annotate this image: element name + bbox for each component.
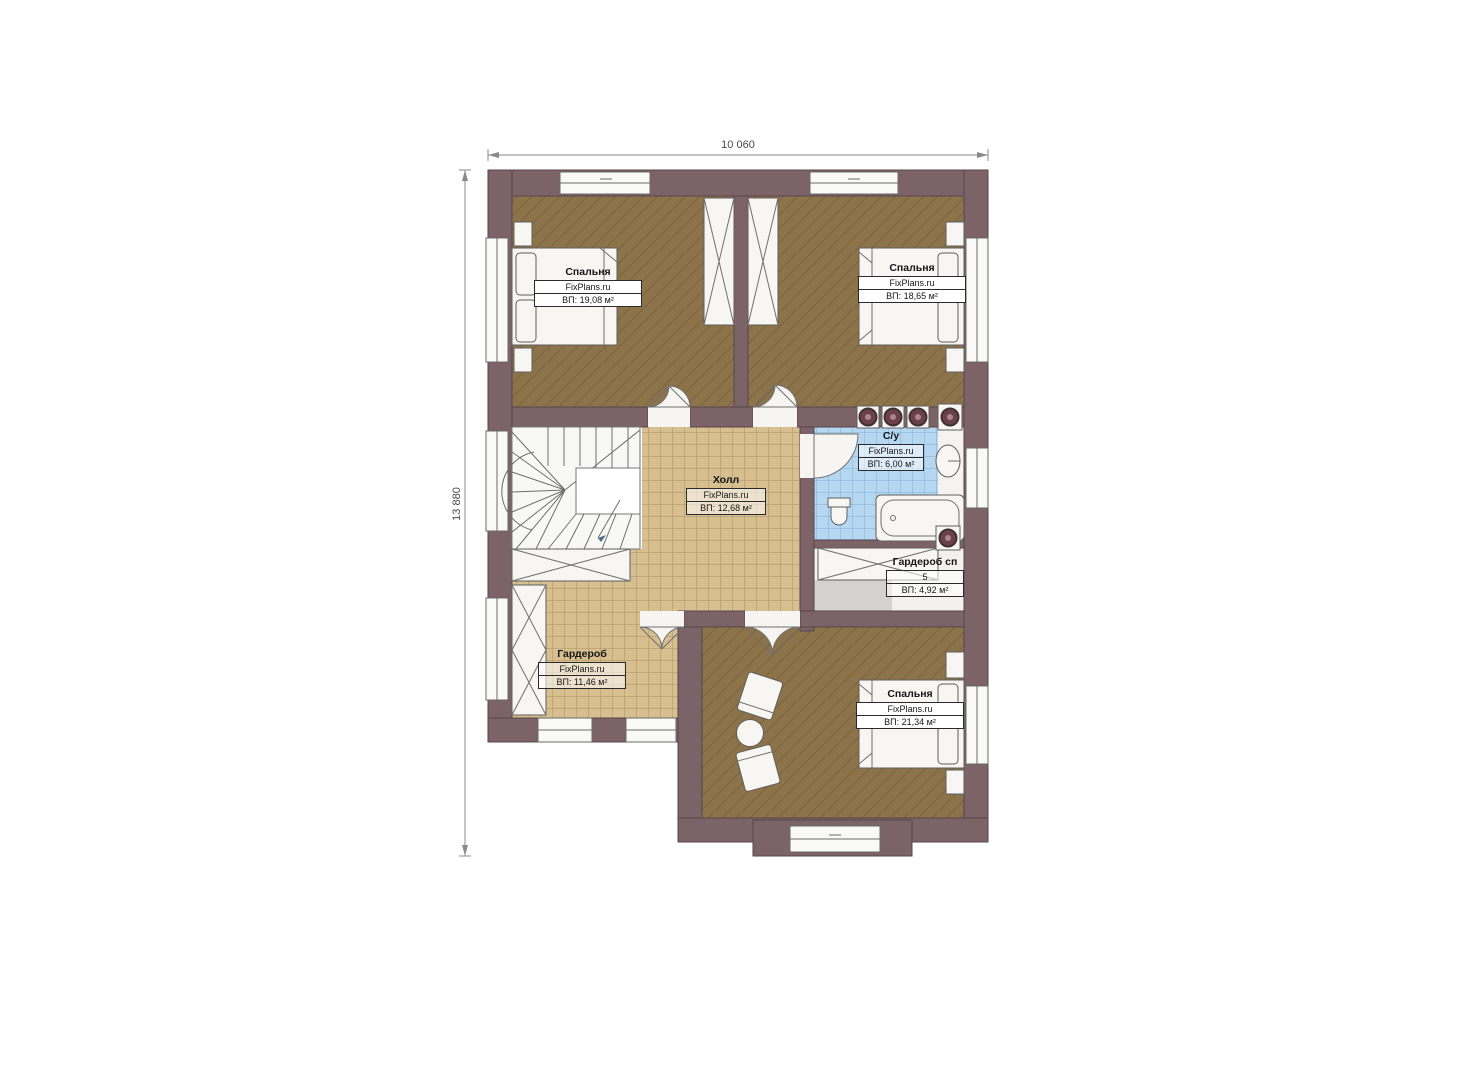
room-name: Холл [686, 474, 766, 487]
room-label-bedroom-1: Спальня FixPlans.ru ВП: 19,08 м² [534, 266, 642, 307]
room-brand: FixPlans.ru [535, 281, 641, 293]
floor-plan-drawing [0, 0, 1474, 1080]
room-name: С/у [858, 430, 924, 443]
room-area: ВП: 19,08 м² [535, 293, 641, 306]
nightstand-icon [946, 770, 964, 794]
stairs-icon [502, 427, 640, 549]
window [538, 718, 592, 742]
nightstand-icon [514, 222, 532, 246]
room-name: Спальня [856, 688, 964, 701]
window [966, 686, 988, 764]
room-label-wardrobe-master: Гардероб сп 5 ВП: 4,92 м² [886, 556, 964, 597]
room-brand: 5 [887, 571, 963, 583]
room-area: ВП: 4,92 м² [887, 583, 963, 596]
room-name: Гардероб [538, 648, 626, 661]
room-label-hall: Холл FixPlans.ru ВП: 12,68 м² [686, 474, 766, 515]
closet-icon [512, 549, 630, 581]
room-name: Гардероб сп [886, 556, 964, 569]
room-label-wardrobe: Гардероб FixPlans.ru ВП: 11,46 м² [538, 648, 626, 689]
window [560, 172, 650, 194]
window [790, 826, 880, 852]
room-area: ВП: 18,65 м² [859, 289, 965, 302]
room-label-bedroom-2: Спальня FixPlans.ru ВП: 18,65 м² [858, 262, 966, 303]
room-label-bedroom-3: Спальня FixPlans.ru ВП: 21,34 м² [856, 688, 964, 729]
floor-plan-canvas: 10 060 13 880 Спальня FixPlans.ru ВП: 19… [0, 0, 1474, 1080]
room-label-bathroom: С/у FixPlans.ru ВП: 6,00 м² [858, 430, 924, 471]
window [626, 718, 676, 742]
sink-icon [936, 445, 960, 477]
table-icon [737, 720, 764, 747]
window [966, 238, 988, 362]
closet-icon [748, 198, 778, 325]
wardrobe-master-floor [814, 580, 892, 611]
window [486, 598, 508, 700]
room-name: Спальня [534, 266, 642, 279]
nightstand-icon [946, 652, 964, 678]
window [486, 238, 508, 362]
window [486, 431, 508, 531]
closet-icon [704, 198, 734, 325]
room-area: ВП: 12,68 м² [687, 501, 765, 514]
window [810, 172, 898, 194]
room-brand: FixPlans.ru [859, 445, 923, 457]
room-area: ВП: 21,34 м² [857, 715, 963, 728]
nightstand-icon [946, 222, 964, 246]
room-area: ВП: 6,00 м² [859, 457, 923, 470]
dimension-width-label: 10 060 [688, 139, 788, 151]
room-brand: FixPlans.ru [539, 663, 625, 675]
room-name: Спальня [858, 262, 966, 275]
nightstand-icon [514, 348, 532, 372]
window [966, 448, 988, 508]
room-brand: FixPlans.ru [859, 277, 965, 289]
room-area: ВП: 11,46 м² [539, 675, 625, 688]
dimension-height-label: 13 880 [451, 464, 463, 544]
room-brand: FixPlans.ru [857, 703, 963, 715]
nightstand-icon [946, 348, 964, 372]
room-brand: FixPlans.ru [687, 489, 765, 501]
